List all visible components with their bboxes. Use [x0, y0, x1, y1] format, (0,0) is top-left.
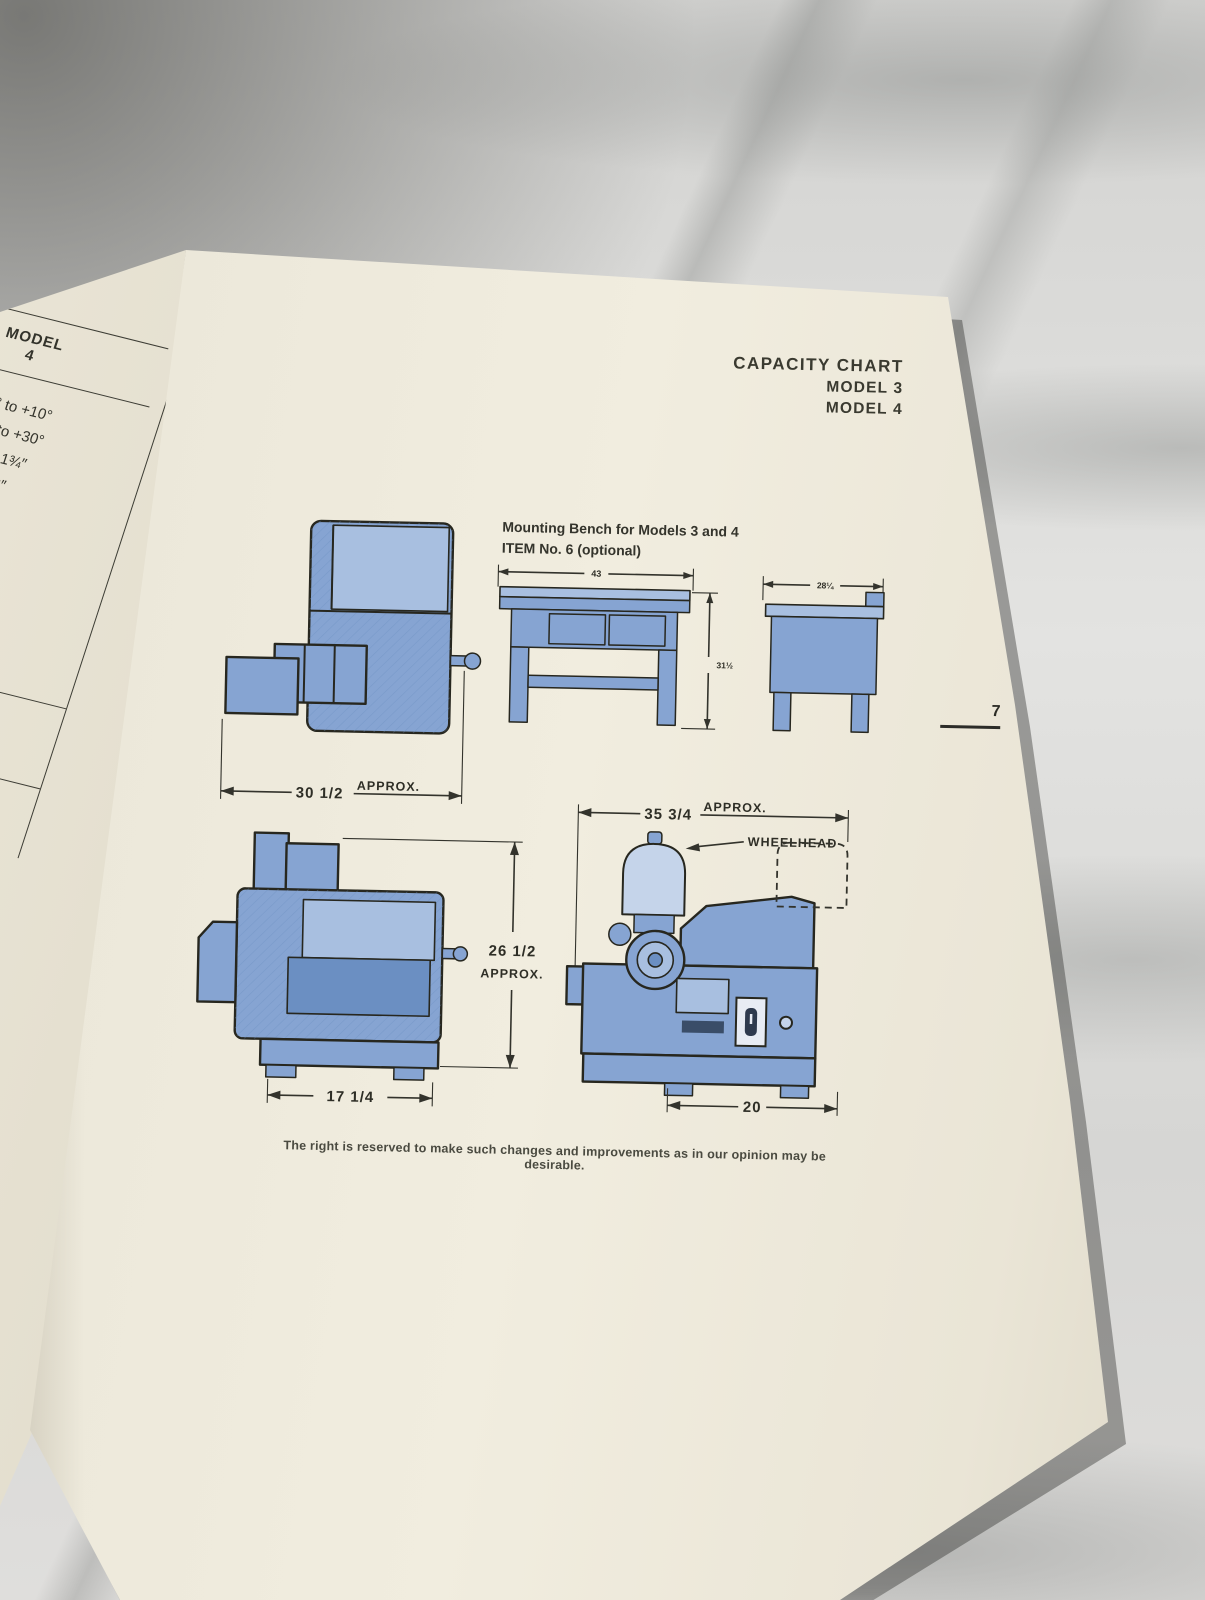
machine-foot	[780, 1086, 808, 1099]
machine-side-view-diagram: 26 1/2 APPROX. 17 1/4	[187, 825, 553, 1122]
disclaimer-text: The right is reserved to make such chang…	[262, 1138, 847, 1178]
machine-foot	[266, 1065, 296, 1078]
column-block	[254, 833, 289, 892]
bench-shelf	[528, 675, 658, 690]
page-content: CAPACITY CHART MODEL 3 MODEL 4 Mounting …	[158, 252, 1116, 1600]
dimension-value: 30 1/2	[296, 784, 344, 802]
bench-drawer	[549, 614, 606, 645]
button-icon	[780, 1017, 792, 1029]
guard-cap	[648, 832, 662, 844]
dimension-value: 28¼	[817, 580, 835, 590]
work-table	[225, 657, 298, 714]
photo-scene: MODEL 4 -15° to +10° -10° to +30° 0″ to …	[0, 0, 1205, 1600]
page-header: CAPACITY CHART MODEL 3 MODEL 4	[553, 350, 904, 419]
nameplate	[676, 978, 729, 1013]
machine-front-view-diagram: 30 1/2 APPROX.	[213, 511, 489, 812]
dimension-approx-label: APPROX.	[357, 779, 421, 794]
motor-housing	[680, 895, 814, 969]
pulley-icon	[609, 923, 631, 945]
dimension-value: 43	[591, 569, 601, 579]
dimension-value: 31½	[716, 660, 733, 670]
bench-side-panel	[770, 616, 878, 694]
wheelhead-view-diagram: 35 3/4 APPROX. WHEELHEAD	[552, 798, 879, 1125]
machine-base	[260, 1039, 439, 1069]
wheel-guard	[622, 843, 685, 915]
bench-leg	[657, 650, 677, 725]
dimension-value: 26 1/2	[488, 942, 536, 960]
wheel-hub	[648, 953, 662, 967]
page-number: 7	[926, 702, 1001, 729]
bench-front-view: 43	[495, 565, 735, 730]
bench-side-view: 28¼	[760, 576, 884, 733]
machine-foot	[664, 1083, 692, 1096]
dimension-approx-label: APPROX.	[480, 966, 544, 981]
vent-slot	[682, 1021, 724, 1034]
bench-leg	[509, 647, 529, 722]
handwheel-icon	[453, 947, 467, 961]
spec-table-header: MODEL 4	[0, 285, 168, 407]
width-dimension: 17 1/4	[267, 1079, 432, 1107]
dimension-approx-label: APPROX.	[703, 800, 767, 815]
mounting-bench-diagram: 43	[485, 556, 934, 750]
dimension-value: 35 3/4	[644, 806, 692, 824]
bench-leg	[773, 692, 791, 730]
page-number-underline	[940, 725, 1000, 729]
bench-leg	[851, 694, 869, 732]
header-model-4: MODEL 4	[553, 394, 903, 419]
machine-side-body	[196, 831, 470, 1081]
bench-backsplash	[866, 592, 884, 606]
handwheel-icon	[464, 653, 480, 669]
dimension-value: 17 1/4	[326, 1088, 374, 1106]
wheelhead-machine-body	[564, 830, 847, 1099]
dimension-value: 20	[743, 1099, 762, 1116]
left-wing	[197, 921, 237, 1002]
machine-base	[583, 1053, 816, 1086]
machine-front-body	[225, 519, 483, 734]
machine-foot	[394, 1068, 424, 1081]
main-page: CAPACITY CHART MODEL 3 MODEL 4 Mounting …	[0, 0, 1205, 1600]
bench-drawer	[609, 615, 666, 646]
